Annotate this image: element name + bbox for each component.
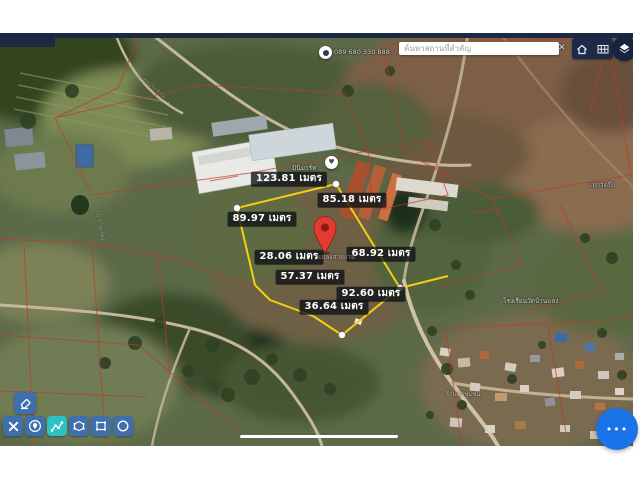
vertex-handle[interactable] <box>234 205 241 212</box>
top-left-panel-stub <box>0 33 55 47</box>
home-button[interactable] <box>575 42 589 56</box>
poi-dot-icon <box>323 50 329 56</box>
poi-marker[interactable] <box>319 46 332 59</box>
delete-tool-button[interactable] <box>3 416 23 436</box>
poi-shop-marker[interactable]: ♥ <box>325 156 338 169</box>
layers-button[interactable] <box>612 36 633 61</box>
measure-label: 85.18 เมตร <box>318 193 387 208</box>
satellite-map[interactable]: 123.81 เมตร 85.18 เมตร 89.97 เมตร 28.06 … <box>0 33 633 446</box>
home-icon <box>575 42 589 56</box>
village-shop-label: ร้านค้าชุมชน <box>446 392 480 398</box>
measure-label: 123.81 เมตร <box>251 172 327 187</box>
vertex-handle[interactable] <box>333 181 340 188</box>
app-window: 123.81 เมตร 85.18 เมตร 89.97 เมตร 28.06 … <box>0 0 640 480</box>
marker-icon <box>28 419 42 433</box>
satellite-imagery <box>0 33 633 446</box>
pin-caption: แปลงสวยงาม <box>317 254 355 261</box>
fab-dots-icon: ••• <box>606 423 628 436</box>
polygon-tool-button[interactable] <box>69 416 89 436</box>
measure-label: 28.06 เมตร <box>255 250 324 265</box>
rectangle-tool-button[interactable] <box>91 416 111 436</box>
grid-icon <box>596 42 610 56</box>
shop-label: มินิมาร์ท <box>292 165 316 172</box>
map-controls <box>572 38 613 59</box>
measure-label: 57.37 เมตร <box>276 270 345 285</box>
polygon-tool-icon <box>72 419 86 433</box>
clear-search-icon[interactable]: ✕ <box>558 43 566 53</box>
poi-phone-label: 089 680 330 888 <box>334 49 390 56</box>
search-input[interactable] <box>399 42 559 55</box>
grid-button[interactable] <box>596 42 610 56</box>
junction-label: แยกวัดบึง <box>588 182 615 189</box>
scale-bar <box>240 435 398 438</box>
map-top-border <box>0 33 633 38</box>
measure-label: 36.64 เมตร <box>300 300 369 315</box>
circle-tool-button[interactable] <box>113 416 133 436</box>
layers-icon <box>617 41 632 56</box>
measure-label: 89.97 เมตร <box>228 212 297 227</box>
heart-icon: ♥ <box>328 159 334 166</box>
measure-path-tool-button[interactable] <box>47 416 67 436</box>
marker-tool-button[interactable] <box>25 416 45 436</box>
delete-x-icon <box>7 420 20 433</box>
rectangle-tool-icon <box>94 419 108 433</box>
vertex-handle[interactable] <box>339 332 346 339</box>
measure-path-icon <box>50 419 64 433</box>
eraser-icon <box>18 396 32 410</box>
eraser-tool-button[interactable] <box>14 392 36 414</box>
chat-fab-button[interactable]: ••• <box>596 408 638 450</box>
school-label: โรงเรียนวัดบ้านแลง <box>503 298 559 305</box>
measure-label: 68.92 เมตร <box>347 247 416 262</box>
circle-tool-icon <box>116 419 130 433</box>
